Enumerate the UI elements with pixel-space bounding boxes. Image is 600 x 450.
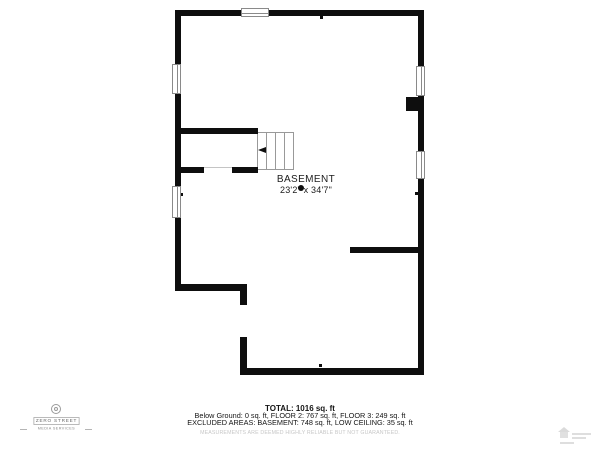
logo-emblem-inner — [54, 407, 58, 411]
stair-tread — [284, 133, 285, 169]
tick-marker-left — [181, 193, 183, 196]
wall-right — [418, 10, 424, 375]
chimney-block — [406, 97, 418, 111]
window-left-upper — [172, 64, 181, 94]
wall-stair-top — [181, 128, 258, 134]
window-right-lower — [416, 151, 425, 179]
area-summary: TOTAL: 1016 sq. ft Below Ground: 0 sq. f… — [100, 405, 500, 427]
window-right-upper — [416, 66, 425, 96]
window-top — [241, 8, 269, 17]
wall-stair-bottom-right — [232, 167, 258, 173]
wall-lower-left-upper — [240, 284, 247, 305]
watermark-house-body — [560, 432, 568, 438]
logo-dash — [85, 429, 92, 430]
watermark-line — [560, 442, 574, 444]
logo-tagline-row: MEDIA SERVICES — [20, 426, 93, 432]
logo-tagline: MEDIA SERVICES — [37, 427, 74, 431]
window-left-lower — [172, 186, 181, 218]
window-pane-line — [177, 187, 178, 217]
wall-stair-bottom-left — [181, 167, 204, 173]
logo-emblem-icon — [51, 404, 61, 414]
window-pane-line — [242, 13, 268, 14]
disclaimer-text: MEASUREMENTS ARE DEEMED HIGHLY RELIABLE … — [188, 430, 413, 435]
wall-top — [175, 10, 424, 16]
point-marker-dot — [298, 185, 304, 191]
tick-marker-top — [320, 16, 323, 19]
room-dimensions: 23'2" x 34'7" — [236, 185, 376, 195]
logo-dash — [20, 429, 27, 430]
watermark-line — [572, 437, 586, 439]
company-logo: ZERO STREET MEDIA SERVICES — [27, 404, 85, 432]
window-pane-line — [177, 65, 178, 93]
stair-tread — [275, 133, 276, 169]
wall-left — [175, 10, 181, 291]
window-pane-line — [421, 152, 422, 178]
tick-marker-bottom — [319, 364, 322, 367]
wall-interior-right — [350, 247, 418, 253]
watermark-line — [572, 433, 591, 435]
room-label: BASEMENT — [236, 174, 376, 185]
logo-name: ZERO STREET — [33, 417, 79, 425]
floorplan-page: BASEMENT 23'2" x 34'7" TOTAL: 1016 sq. f… — [0, 0, 600, 450]
stair-direction-arrow-icon — [258, 147, 266, 153]
stair-tread — [266, 133, 267, 169]
door-opening-line — [204, 167, 232, 168]
window-pane-line — [421, 67, 422, 95]
excluded-areas-text: EXCLUDED AREAS: BASEMENT: 748 sq. ft, LO… — [100, 420, 500, 427]
wall-step-lower-left — [175, 284, 247, 291]
watermark — [556, 427, 596, 447]
tick-marker-right — [415, 192, 418, 195]
wall-lower-left-lower — [240, 337, 247, 375]
wall-bottom — [240, 368, 424, 375]
